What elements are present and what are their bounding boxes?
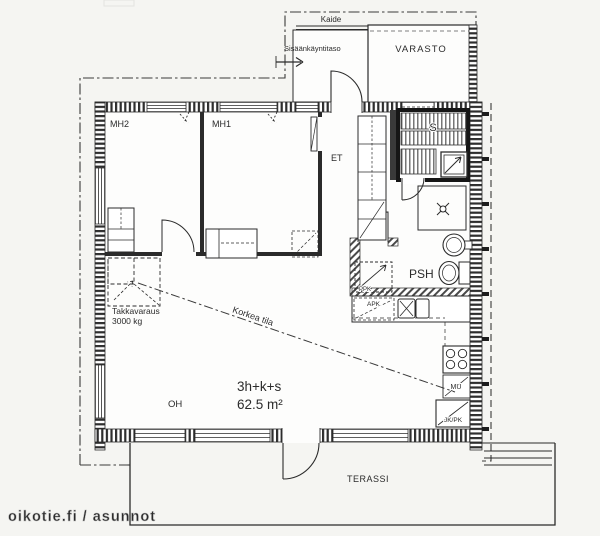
bedroom2-label: MH2 [110,119,129,129]
oven-microwave-unit: MU [443,375,470,398]
toilet-icon [439,262,470,285]
living-room-label: OH [168,399,182,410]
bedroom2-wardrobe [108,208,134,252]
sauna-bench-lower [401,149,436,174]
bedroom1-label: MH1 [212,119,231,129]
fireplace-label-line1: Takkavaraus [112,306,160,316]
fridge-freezer-label: JK/PK [444,417,463,424]
railing-label: Kaide [321,15,342,24]
washing-machine-label: PPK [359,287,371,293]
fireplace-label-line2: 3000 kg [112,316,143,326]
floorplan-svg: Kaide Sisäänkäyntitaso VARASTO [0,0,600,536]
stove-icon [443,346,470,373]
entry-platform-label: Sisäänkäyntitaso [284,44,341,53]
hall-closets [358,116,386,240]
terrace-label: TERASSI [347,474,389,484]
entry-hall-label: ET [331,153,343,163]
sauna-symbol: S [429,122,436,134]
storage-room: VARASTO [368,25,477,103]
apartment-layout: 3h+k+s [237,379,282,394]
apartment-area: 62.5 m² [237,397,283,412]
floorplan-image: Kaide Sisäänkäyntitaso VARASTO [0,0,600,536]
storage-label: VARASTO [395,44,447,55]
fridge-freezer-unit: JK/PK [436,400,470,427]
sink-icon [398,299,429,318]
bedroom1-bed [206,229,257,258]
sauna-heater-icon [441,152,467,177]
watermark-text: oikotie.fi / asunnot [8,509,156,525]
washroom-label: PSH [409,267,434,281]
dishwasher-label: APK [367,301,381,308]
bedroom1-door [311,117,317,151]
oven-microwave-label: MU [451,384,462,391]
